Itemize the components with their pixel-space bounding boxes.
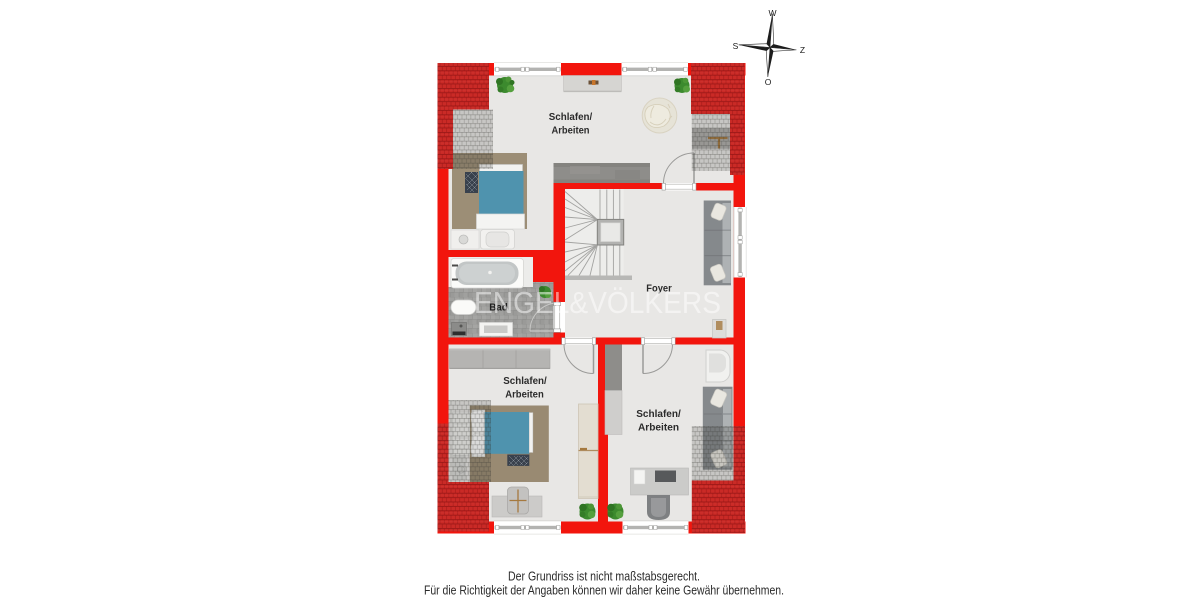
svg-text:O: O bbox=[765, 77, 772, 87]
svg-text:S: S bbox=[733, 41, 739, 51]
svg-text:Arbeiten: Arbeiten bbox=[505, 389, 544, 401]
svg-text:ENGEL&VÖLKERS: ENGEL&VÖLKERS bbox=[474, 285, 721, 320]
svg-text:Der Grundriss ist nicht maßsta: Der Grundriss ist nicht maßstabsgerecht. bbox=[508, 570, 700, 584]
svg-text:Schlafen/: Schlafen/ bbox=[636, 408, 681, 420]
svg-text:Schlafen/: Schlafen/ bbox=[503, 375, 547, 387]
svg-text:Arbeiten: Arbeiten bbox=[552, 125, 590, 137]
svg-text:Für die Richtigkeit der Angabe: Für die Richtigkeit der Angaben können w… bbox=[424, 584, 784, 598]
svg-text:W: W bbox=[768, 8, 776, 18]
svg-text:Z: Z bbox=[800, 45, 805, 55]
svg-text:Arbeiten: Arbeiten bbox=[638, 422, 679, 434]
svg-text:Schlafen/: Schlafen/ bbox=[549, 111, 593, 123]
